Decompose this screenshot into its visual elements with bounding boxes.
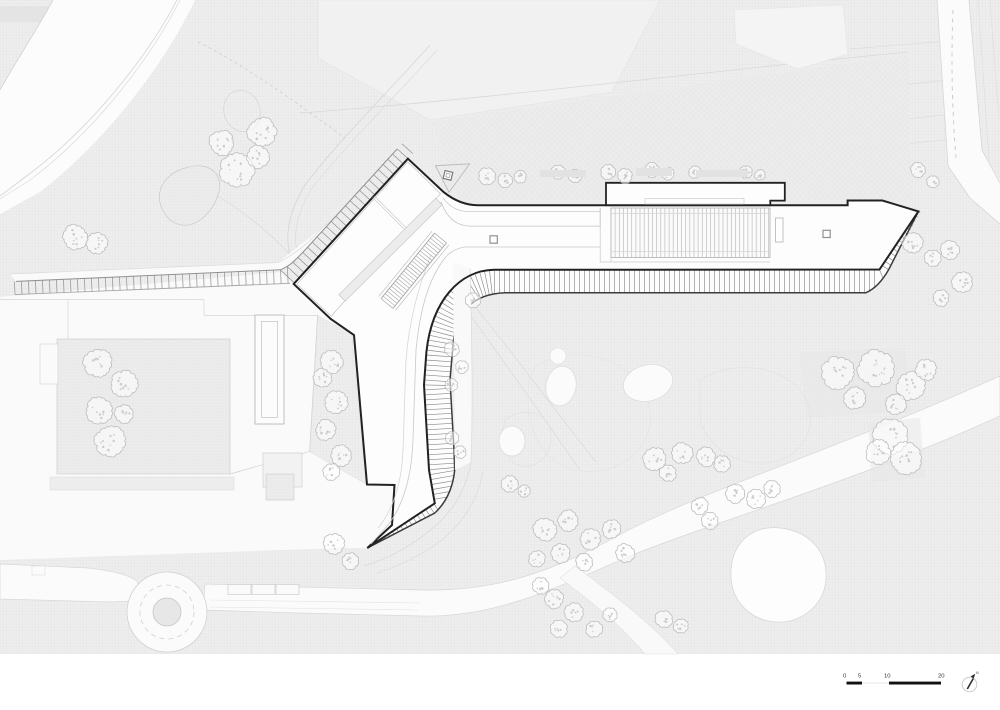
svg-text:N: N [976,670,979,675]
svg-text:10: 10 [884,674,891,680]
svg-text:20: 20 [938,674,945,680]
